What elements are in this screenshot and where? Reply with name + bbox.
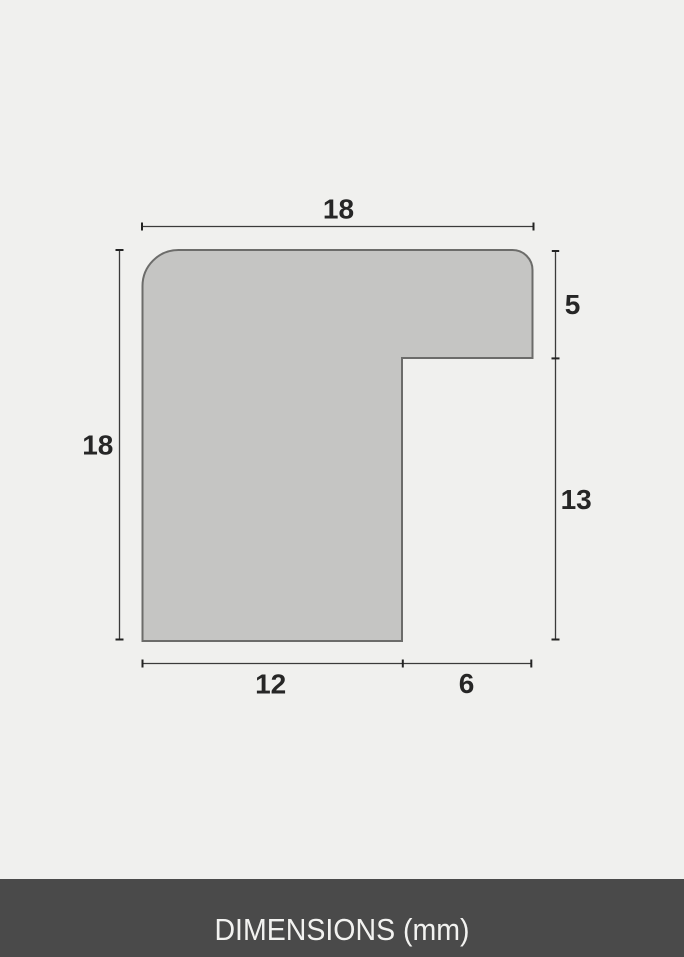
svg-text:18: 18	[82, 430, 113, 461]
svg-text:18: 18	[323, 193, 354, 224]
svg-text:6: 6	[459, 668, 475, 699]
svg-text:13: 13	[561, 484, 592, 515]
svg-text:5: 5	[565, 289, 581, 320]
svg-text:12: 12	[255, 669, 286, 700]
